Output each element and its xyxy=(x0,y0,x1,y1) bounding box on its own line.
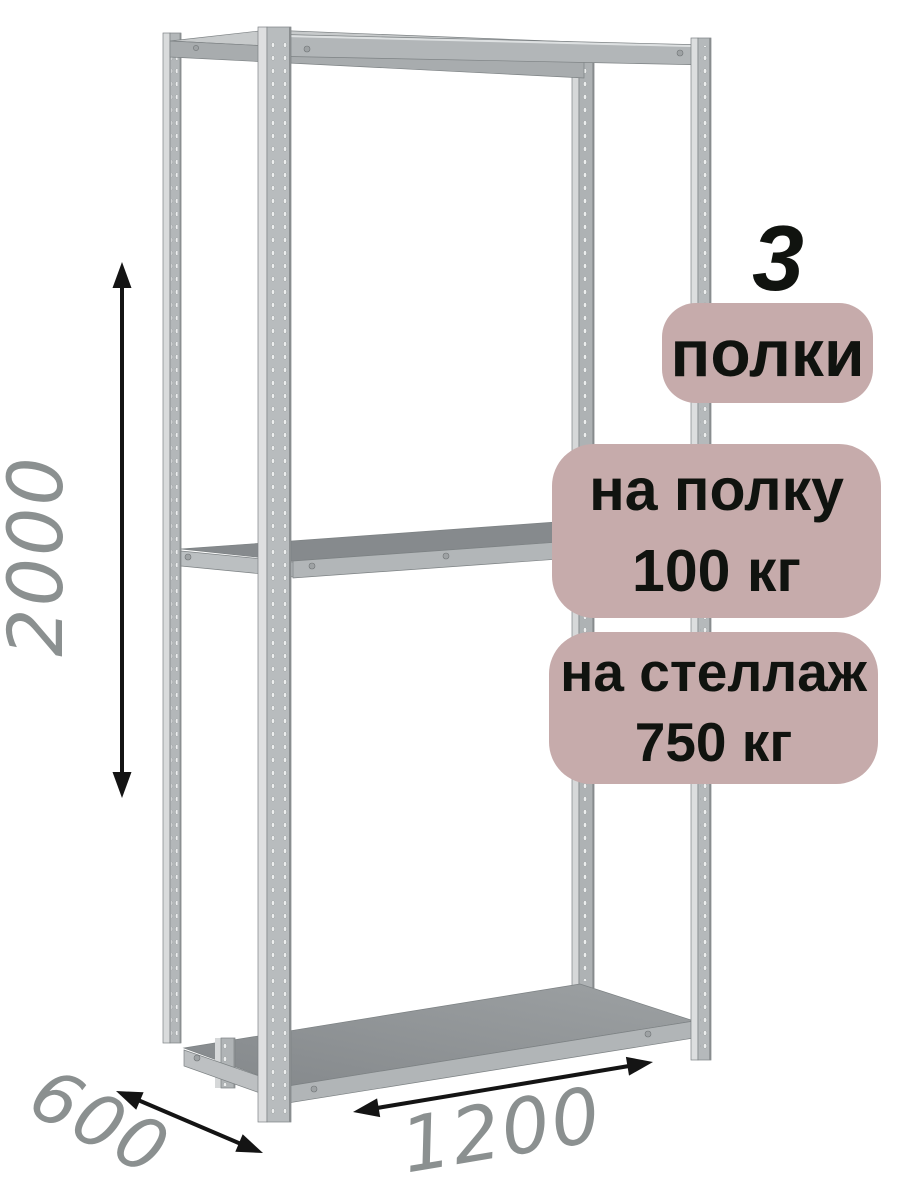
arrow-left-icon xyxy=(353,1098,380,1117)
rack-load-line2: 750 кг xyxy=(635,708,792,778)
arrow-downright-icon xyxy=(235,1134,263,1153)
product-image: 2000 600 1200 3 полки на полку 100 кг на… xyxy=(0,0,900,1200)
rack-load-line1: на стеллаж xyxy=(560,638,867,708)
shelf-load-badge: на полку 100 кг xyxy=(552,444,881,618)
depth-value: 600 xyxy=(17,1051,183,1193)
arrow-right-icon xyxy=(626,1057,653,1076)
arrow-down-icon xyxy=(113,772,132,798)
height-value: 2000 xyxy=(0,455,80,656)
shelves-badge: полки xyxy=(662,303,873,403)
height-dimension: 2000 xyxy=(0,262,132,798)
shelves-badge-label: полки xyxy=(670,315,864,391)
front-left-post xyxy=(258,27,291,1122)
back-left-post xyxy=(163,33,181,1043)
rack-load-badge: на стеллаж 750 кг xyxy=(549,632,878,784)
shelf-count: 3 xyxy=(728,212,828,312)
shelf-load-line2: 100 кг xyxy=(632,531,801,612)
shelf-load-line1: на полку xyxy=(589,450,844,531)
width-value: 1200 xyxy=(395,1069,608,1190)
